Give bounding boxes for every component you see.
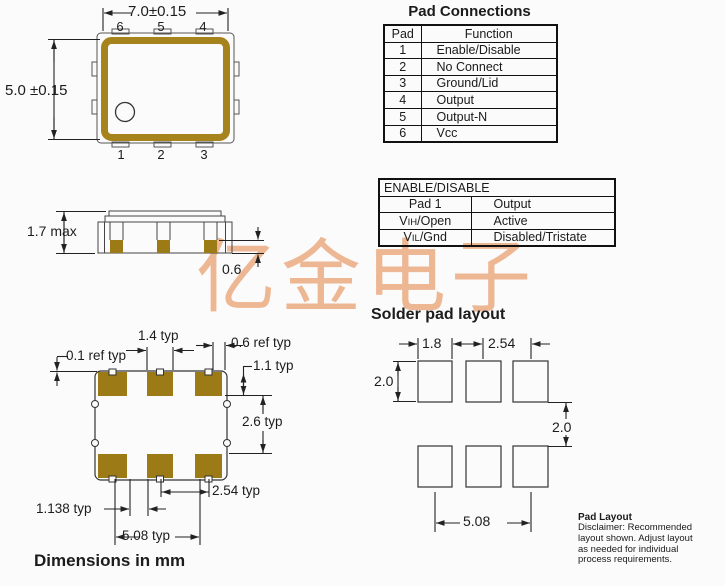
- table-row: VIH/Open Active: [379, 213, 615, 230]
- pin-label-6: 6: [114, 19, 126, 34]
- vil-gnd-cell: VIL/Gnd: [379, 229, 471, 246]
- dim-pad-width: 1.4 typ: [138, 328, 179, 343]
- table-row: VIL/Gnd Disabled/Tristate: [379, 229, 615, 246]
- table-row: 6Vcc: [384, 125, 557, 142]
- land-pattern-pads: [98, 372, 222, 478]
- side-pad-dim: 0.6: [222, 261, 241, 277]
- pad-connections-title: Pad Connections: [383, 3, 556, 20]
- enable-disable-table: ENABLE/DISABLE Pad 1 Output VIH/Open Act…: [378, 178, 616, 247]
- dimensions-caption: Dimensions in mm: [34, 551, 185, 571]
- col-header-pad: Pad: [384, 25, 421, 42]
- side-view-pads: [110, 240, 217, 253]
- solder-dimensions: [393, 338, 572, 532]
- col-header-function: Function: [421, 25, 557, 42]
- top-view-width-dim: 7.0±0.15: [128, 3, 186, 20]
- table-row: 1Enable/Disable: [384, 42, 557, 59]
- note-line: process requirements.: [578, 555, 724, 566]
- dim-notch: 0.6 ref typ: [231, 335, 291, 350]
- dim-pad-height: 1.1 typ: [253, 358, 294, 373]
- side-height-dim: 1.7 max: [27, 223, 77, 239]
- disabled-tristate-cell: Disabled/Tristate: [471, 229, 615, 246]
- dim-span: 5.08 typ: [122, 528, 170, 543]
- dim-pitch: 2.54 typ: [212, 483, 260, 498]
- solder-dim-pad-height: 2.0: [374, 373, 393, 389]
- table-row: 5Output-N: [384, 108, 557, 125]
- dim-edge-offset: 0.1 ref typ: [66, 348, 126, 363]
- top-view-height-dim: 5.0 ±0.15: [5, 82, 67, 99]
- dim-row-gap: 2.6 typ: [242, 414, 283, 429]
- pad-layout-note: Pad Layout Disclaimer: Recommended layou…: [578, 512, 724, 566]
- vih-open-cell: VIH/Open: [379, 213, 471, 230]
- pin-label-4: 4: [197, 19, 209, 34]
- pin-label-3: 3: [198, 147, 210, 162]
- solder-dim-pitch: 2.54: [488, 335, 515, 351]
- solder-dim-pad-width: 1.8: [422, 335, 441, 351]
- enable-header-output: Output: [471, 196, 615, 213]
- enable-header-pad1: Pad 1: [379, 196, 471, 213]
- pad-connections-table: Pad Function 1Enable/Disable 2No Connect…: [383, 24, 558, 143]
- pin-label-1: 1: [115, 147, 127, 162]
- side-view-dimensions: [56, 212, 264, 268]
- active-cell: Active: [471, 213, 615, 230]
- datasheet-drawing: 亿金电子: [0, 0, 725, 586]
- enable-table-title: ENABLE/DISABLE: [379, 179, 615, 196]
- solder-dim-row-gap: 2.0: [552, 419, 571, 435]
- pin-label-5: 5: [155, 19, 167, 34]
- table-row: 2No Connect: [384, 59, 557, 76]
- line-art: [0, 0, 725, 586]
- table-row: 4Output: [384, 92, 557, 109]
- solder-layout-title: Solder pad layout: [371, 306, 505, 324]
- pin1-marker: [116, 103, 135, 122]
- table-row: 3Ground/Lid: [384, 75, 557, 92]
- dim-offset: 1.138 typ: [36, 501, 92, 516]
- solder-pads: [418, 361, 548, 487]
- package-body: [105, 41, 227, 138]
- note-line: layout shown. Adjust layout: [578, 534, 724, 545]
- table-row: Pad 1 Output: [379, 196, 615, 213]
- pin-label-2: 2: [155, 147, 167, 162]
- solder-dim-span: 5.08: [463, 513, 490, 529]
